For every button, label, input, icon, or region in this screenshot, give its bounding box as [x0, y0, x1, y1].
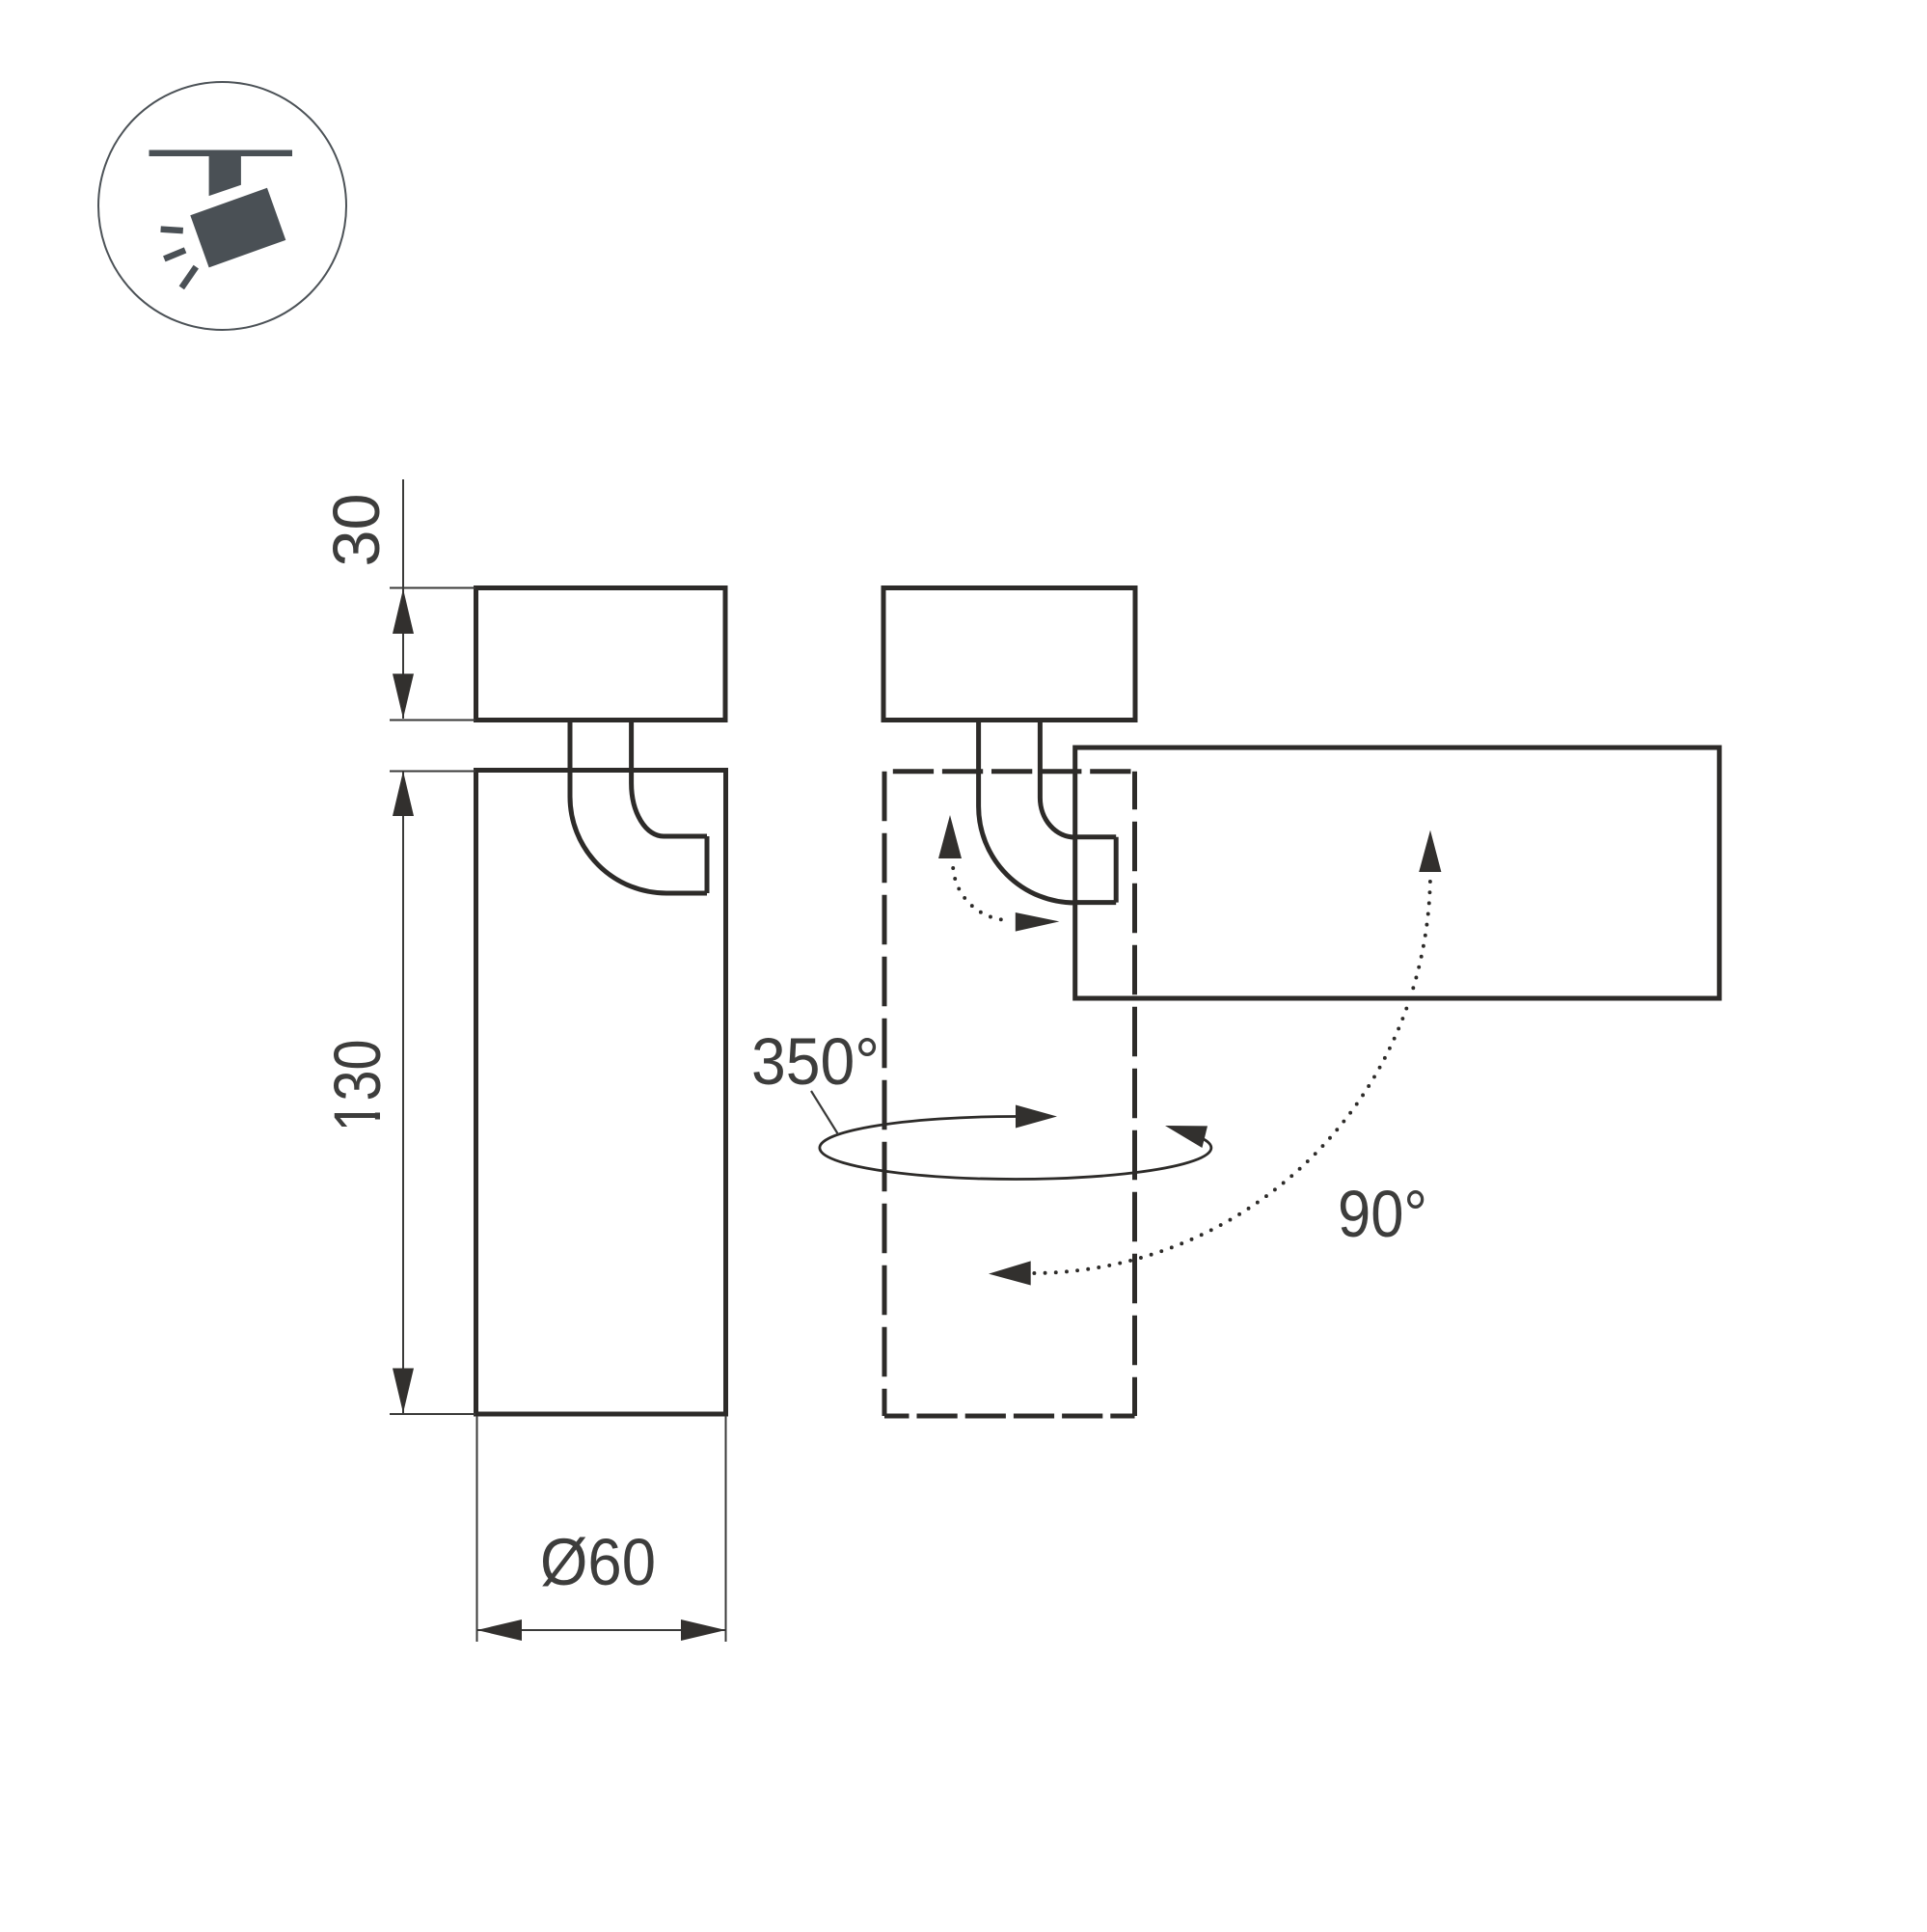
svg-text:30: 30	[319, 494, 394, 567]
svg-text:350°: 350°	[751, 1024, 880, 1099]
svg-text:130: 130	[320, 1040, 394, 1132]
svg-text:90°: 90°	[1338, 1177, 1427, 1251]
svg-text:Ø60: Ø60	[540, 1525, 656, 1599]
